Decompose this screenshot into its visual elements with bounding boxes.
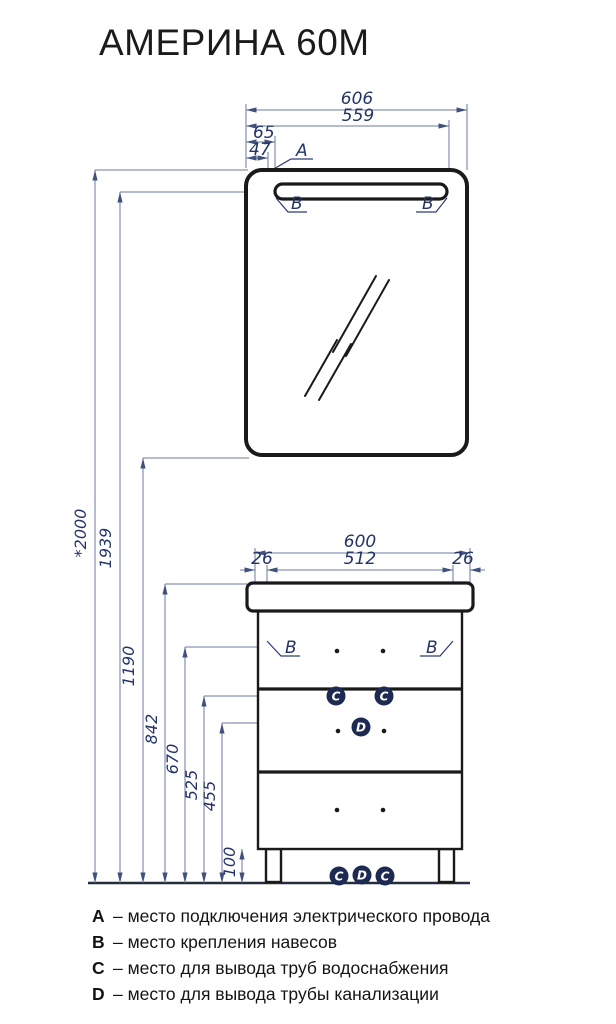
- dim-mirror-wire-offset: 47: [249, 140, 271, 160]
- cabinet-unit: B B C C D C D C: [247, 583, 473, 886]
- badge-c-water-left: C: [332, 690, 341, 704]
- dim-water-outlet: 525: [182, 770, 201, 801]
- legend: A – место подключения электрического про…: [92, 903, 490, 1007]
- dim-cabinet-offset-left: 26: [251, 549, 273, 569]
- badge-c-floor-right: C: [381, 870, 390, 884]
- cabinet-countertop: [247, 583, 473, 611]
- badge-c-floor-left: C: [335, 870, 344, 884]
- badge-d-floor: D: [357, 869, 367, 883]
- legend-key-b: B: [92, 929, 107, 955]
- mirror-unit: B B: [246, 170, 467, 455]
- legend-item-a: A – место подключения электрического про…: [92, 903, 490, 929]
- legend-item-b: B – место крепления навесов: [92, 929, 490, 955]
- cabinet-leg-right: [439, 849, 454, 882]
- legend-text-d: – место для вывода трубы канализации: [113, 981, 439, 1007]
- legend-text-c: – место для вывода труб водоснабжения: [113, 955, 449, 981]
- technical-sheet: АМЕРИНА 60М: [0, 0, 616, 1024]
- legend-key-d: D: [92, 981, 107, 1007]
- technical-drawing: *2000 1939 1190 842 670 525 455 100 606 …: [0, 0, 616, 1024]
- legend-item-d: D – место для вывода трубы канализации: [92, 981, 490, 1007]
- dim-overall-height: *2000: [71, 509, 90, 558]
- legend-item-c: C – место для вывода труб водоснабжения: [92, 955, 490, 981]
- legend-text-b: – место крепления навесов: [113, 929, 337, 955]
- dim-drain-outlet: 455: [200, 781, 219, 812]
- dim-legs-height: 100: [220, 847, 239, 878]
- cabinet-leg-left: [266, 849, 281, 882]
- cabinet-fixing-left-label: B: [285, 638, 297, 658]
- dim-cabinet-between-fixings: 512: [344, 549, 376, 569]
- mirror-fixing-right-label: B: [422, 194, 434, 214]
- marker-a: A: [272, 141, 313, 170]
- dim-mirror-fixing-width: 559: [342, 106, 374, 126]
- dim-mirror-fixing: 1939: [96, 528, 115, 569]
- legend-text-a: – место подключения электрического прово…: [113, 903, 490, 929]
- floor-outlet-badges: C D C: [330, 866, 395, 886]
- dim-cabinet-offset-right: 26: [452, 549, 474, 569]
- badge-d-drain: D: [356, 721, 366, 735]
- mirror-dimension-labels: 606 559 65 47: [249, 89, 374, 160]
- cabinet-dimension-labels: 600 512 26 26: [251, 532, 474, 569]
- cabinet-fixing-right-label: B: [426, 638, 438, 658]
- height-dimension-labels: *2000 1939 1190 842 670 525 455 100: [71, 509, 239, 878]
- marker-a-label: A: [295, 141, 308, 161]
- dim-cabinet-fixing: 670: [163, 744, 182, 775]
- badge-c-water-right: C: [380, 690, 389, 704]
- legend-key-c: C: [92, 955, 107, 981]
- legend-key-a: A: [92, 903, 107, 929]
- mirror-fixing-left-label: B: [291, 194, 303, 214]
- dim-mirror-bottom: 1190: [119, 646, 138, 687]
- dim-cabinet-top: 842: [142, 714, 161, 745]
